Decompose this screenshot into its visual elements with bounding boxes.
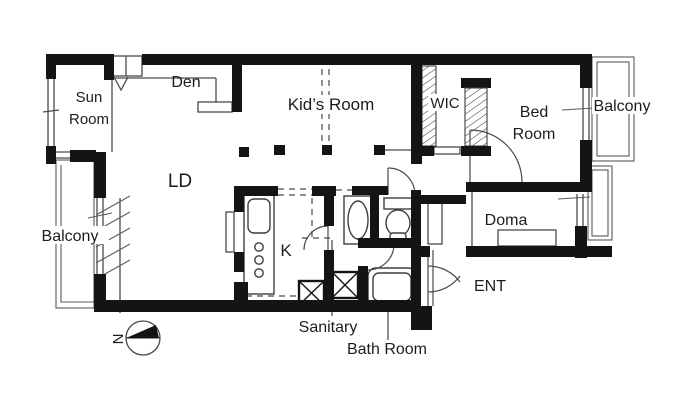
top-wall-cabinet (112, 56, 142, 76)
vanity-washbasin (344, 196, 372, 244)
toilet-door (388, 168, 415, 195)
entrance-double-door (428, 250, 460, 306)
label-den: Den (171, 74, 200, 91)
compass-north (126, 321, 160, 355)
label-ent: ENT (474, 278, 506, 295)
doma-bench (498, 230, 556, 246)
label-doma: Doma (485, 212, 528, 229)
compass-needle (126, 325, 159, 338)
label-bed-room-1: Bed (520, 104, 548, 121)
label-kids-room: Kid’s Room (288, 95, 375, 114)
label-bath-room: Bath Room (347, 341, 427, 358)
shoe-cabinet (428, 202, 442, 244)
label-kitchen: K (280, 241, 292, 260)
label-wic: WIC (430, 95, 459, 112)
label-sun-room-2: Room (69, 111, 109, 128)
label-compass-n: N (110, 334, 127, 345)
floorplan-drawing: Sun Room Den Kid’s Room WIC Bed Room Bal… (0, 0, 680, 414)
label-bed-room-2: Room (513, 126, 556, 143)
floorplan-page: Sun Room Den Kid’s Room WIC Bed Room Bal… (0, 0, 680, 414)
door-chevron-mark (114, 77, 128, 90)
label-ld: LD (168, 171, 192, 192)
bedroom-closet (461, 78, 491, 146)
label-balcony-left: Balcony (42, 228, 99, 245)
toilet (384, 198, 412, 241)
label-balcony-top-right: Balcony (594, 98, 651, 115)
label-sun-room-1: Sun (76, 89, 103, 106)
washer-pan-sanitary (332, 272, 358, 298)
label-sanitary: Sanitary (299, 319, 358, 336)
kitchen-counter (226, 194, 274, 294)
room-labels: Sun Room Den Kid’s Room WIC Bed Room Bal… (33, 74, 652, 358)
